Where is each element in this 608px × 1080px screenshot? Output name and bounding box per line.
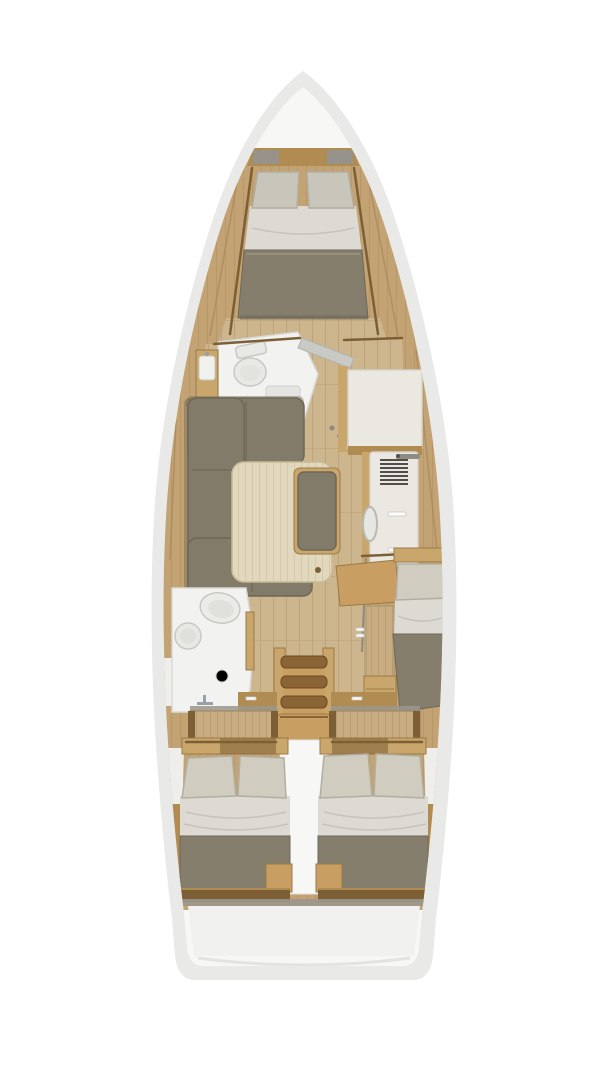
v-berth-pillow-right	[307, 172, 354, 208]
galley-sink	[363, 507, 377, 541]
hull-step-band	[180, 899, 428, 906]
faucet-stem	[203, 695, 206, 704]
port-headboard-dark	[220, 738, 276, 754]
step-cabinet	[336, 560, 398, 606]
riser-2	[283, 688, 325, 696]
shelf-cap-right	[327, 150, 353, 164]
floor-drain	[216, 670, 228, 682]
aft-head-door-trim	[246, 612, 254, 670]
aft-sink-basin	[180, 628, 196, 644]
port-pillow-left	[182, 756, 236, 798]
toilet-seat	[240, 365, 260, 381]
vanity-faucet-dot	[205, 352, 209, 356]
stbd-pillow-left	[320, 754, 372, 798]
wardrobe-trim	[338, 366, 348, 452]
vent-grille	[380, 460, 408, 484]
tread-2	[281, 676, 327, 688]
door-stop-dot	[330, 426, 335, 431]
wardrobe-cabinet	[348, 370, 422, 448]
galley-drawer-handle-1	[388, 512, 406, 516]
table-leg-dot	[315, 567, 321, 573]
canvas	[0, 0, 608, 1080]
boat-floorplan	[0, 0, 608, 1080]
tread-3	[281, 696, 327, 708]
side-bench-cushion	[298, 472, 336, 550]
stbd-bed-sheet	[318, 796, 428, 838]
stbd-headboard-dark	[332, 738, 388, 754]
stair-steps	[277, 656, 331, 740]
foot-cushion-shadow	[240, 315, 368, 320]
counter-right-edge	[331, 706, 420, 711]
port-pillow-right	[238, 756, 286, 798]
port-bed-sheet	[180, 796, 290, 838]
counter-left-handle	[246, 697, 256, 700]
interior	[148, 148, 460, 965]
stern	[180, 899, 428, 965]
mid-door-handle-1	[356, 628, 364, 631]
v-berth-foot-cushion	[238, 250, 368, 318]
shelf-cap-left	[253, 150, 279, 164]
stbd-pillow-right	[374, 754, 424, 798]
v-berth-pillow-left	[252, 172, 299, 208]
tread-1	[281, 656, 327, 668]
stbd-corner-step	[316, 864, 342, 892]
galley-handle-knob	[396, 454, 400, 458]
transom-panel	[188, 906, 420, 956]
port-corner-step	[266, 864, 292, 892]
mid-side-cabinet	[366, 606, 394, 676]
counter-left-edge	[190, 706, 277, 711]
mid-door-handle-2	[356, 634, 364, 637]
riser-1	[283, 668, 325, 676]
vanity-sink	[199, 356, 215, 380]
mid-berth-pillow	[396, 564, 448, 600]
counter-right-handle	[352, 697, 362, 700]
